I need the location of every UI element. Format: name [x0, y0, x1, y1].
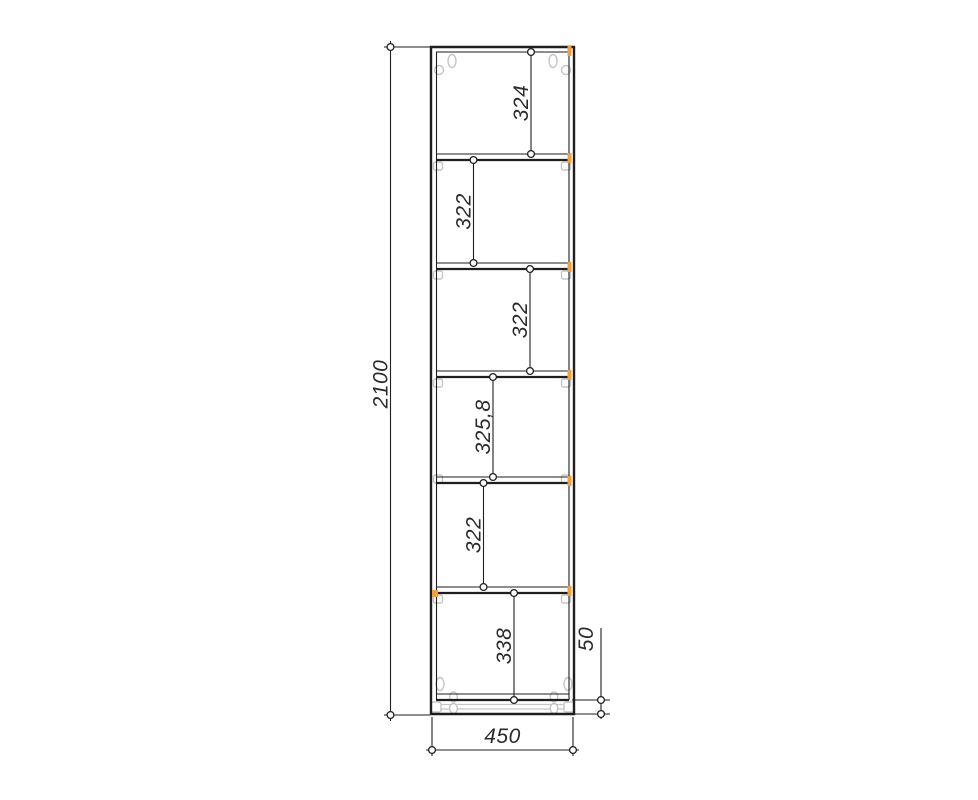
edge-marker — [568, 262, 572, 272]
dim-label-section-2: 322 — [453, 193, 476, 230]
dimension-section-4: 325,8 — [472, 374, 496, 481]
dim-label-overall-height: 2100 — [370, 360, 393, 410]
dimension-plinth-height: 50 — [572, 627, 610, 719]
dimension-overall-height: 2100 — [370, 41, 431, 721]
edge-marker — [568, 476, 572, 486]
dimension-overall-width: 450 — [426, 717, 579, 756]
dimension-section-1: 324 — [510, 49, 534, 158]
dim-label-plinth-height: 50 — [575, 627, 598, 651]
shelf-2 — [436, 263, 569, 269]
shelf-5 — [436, 587, 569, 593]
dimension-section-2: 322 — [453, 157, 477, 267]
shelf-1 — [436, 154, 569, 160]
shelf-4 — [436, 477, 569, 483]
cabinet-structure — [430, 46, 575, 715]
dim-label-section-5: 322 — [463, 517, 486, 554]
dimension-section-3: 322 — [509, 266, 533, 375]
edge-marker — [568, 586, 572, 596]
dimension-section-6: 338 — [493, 590, 517, 704]
dim-label-overall-width: 450 — [484, 725, 521, 748]
dim-label-section-6: 338 — [493, 628, 516, 665]
dim-label-section-3: 322 — [509, 302, 532, 339]
edge-marker — [568, 370, 572, 380]
drawing-canvas: 2100 450 50 324 322 322 — [0, 0, 978, 800]
dim-label-section-4: 325,8 — [472, 399, 495, 454]
edge-marker — [568, 153, 572, 163]
dim-label-section-1: 324 — [510, 85, 533, 122]
edge-marker — [432, 590, 438, 597]
hardware-fittings — [431, 55, 574, 714]
edge-markers — [432, 46, 572, 597]
technical-drawing: 2100 450 50 324 322 322 — [0, 0, 978, 800]
shelf-3 — [436, 371, 569, 377]
edge-marker — [568, 46, 572, 56]
dimension-section-5: 322 — [463, 480, 487, 591]
